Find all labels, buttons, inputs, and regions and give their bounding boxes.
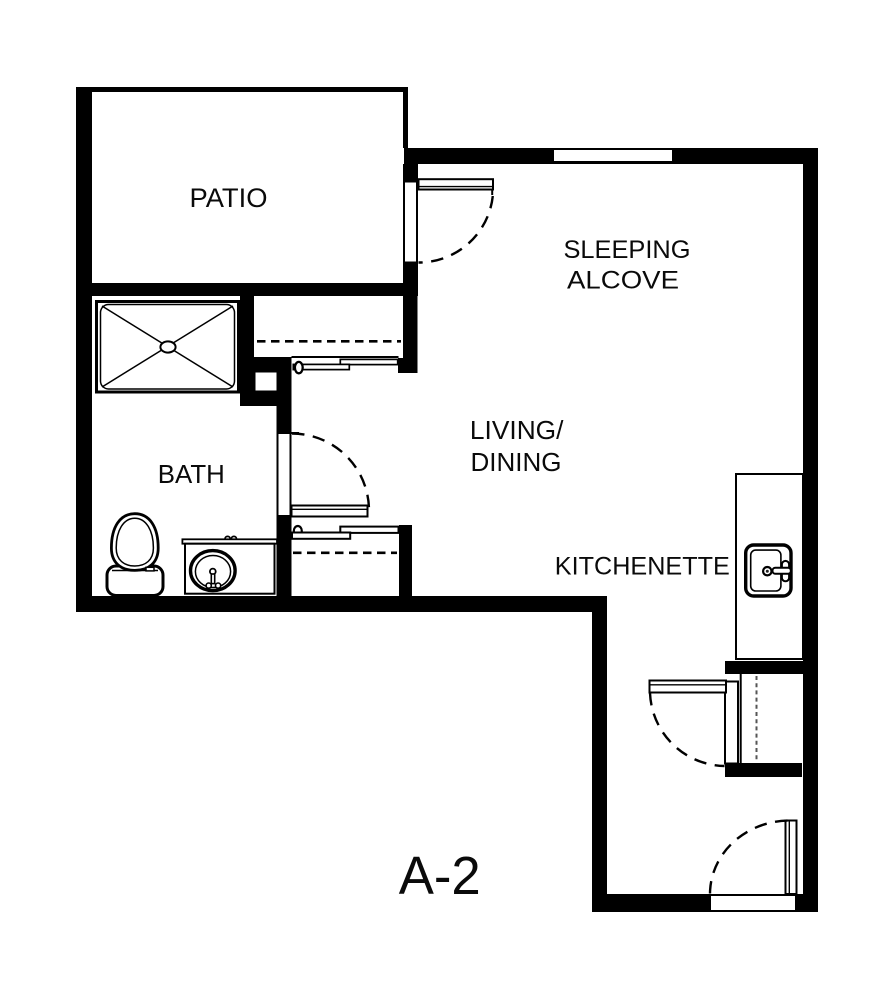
- svg-text:PATIO: PATIO: [190, 183, 268, 213]
- svg-text:KITCHENETTE: KITCHENETTE: [555, 554, 730, 581]
- svg-text:BATH: BATH: [158, 459, 225, 489]
- svg-text:DINING: DINING: [471, 447, 562, 477]
- svg-text:SLEEPING: SLEEPING: [564, 236, 691, 264]
- svg-text:LIVING/: LIVING/: [470, 415, 564, 445]
- svg-text:A-2: A-2: [399, 846, 481, 906]
- svg-text:ALCOVE: ALCOVE: [567, 267, 679, 295]
